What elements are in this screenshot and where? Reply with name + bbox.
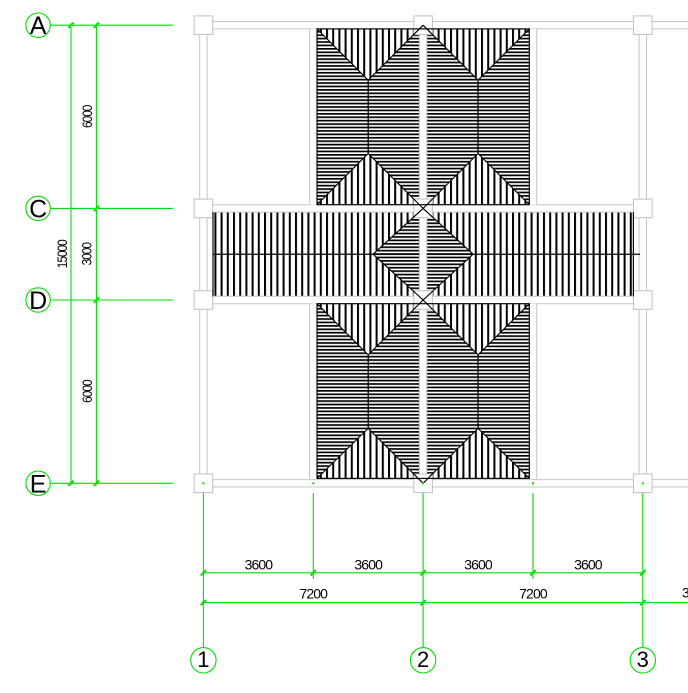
svg-text:2: 2 (417, 647, 429, 672)
svg-text:7200: 7200 (519, 586, 548, 602)
svg-text:3600: 3600 (682, 585, 688, 601)
svg-text:3600: 3600 (245, 556, 274, 572)
svg-text:C: C (29, 195, 47, 223)
svg-text:6000: 6000 (79, 105, 95, 128)
svg-text:3600: 3600 (354, 556, 383, 572)
svg-text:3600: 3600 (464, 556, 493, 572)
svg-text:3000: 3000 (79, 242, 95, 265)
svg-text:3: 3 (637, 647, 649, 672)
svg-text:15000: 15000 (54, 239, 70, 268)
svg-text:7200: 7200 (299, 586, 328, 602)
svg-text:E: E (30, 470, 47, 498)
svg-text:D: D (29, 287, 47, 315)
svg-text:A: A (30, 12, 47, 40)
svg-text:3600: 3600 (574, 556, 603, 572)
svg-text:1: 1 (197, 647, 209, 672)
svg-text:6000: 6000 (79, 380, 95, 403)
